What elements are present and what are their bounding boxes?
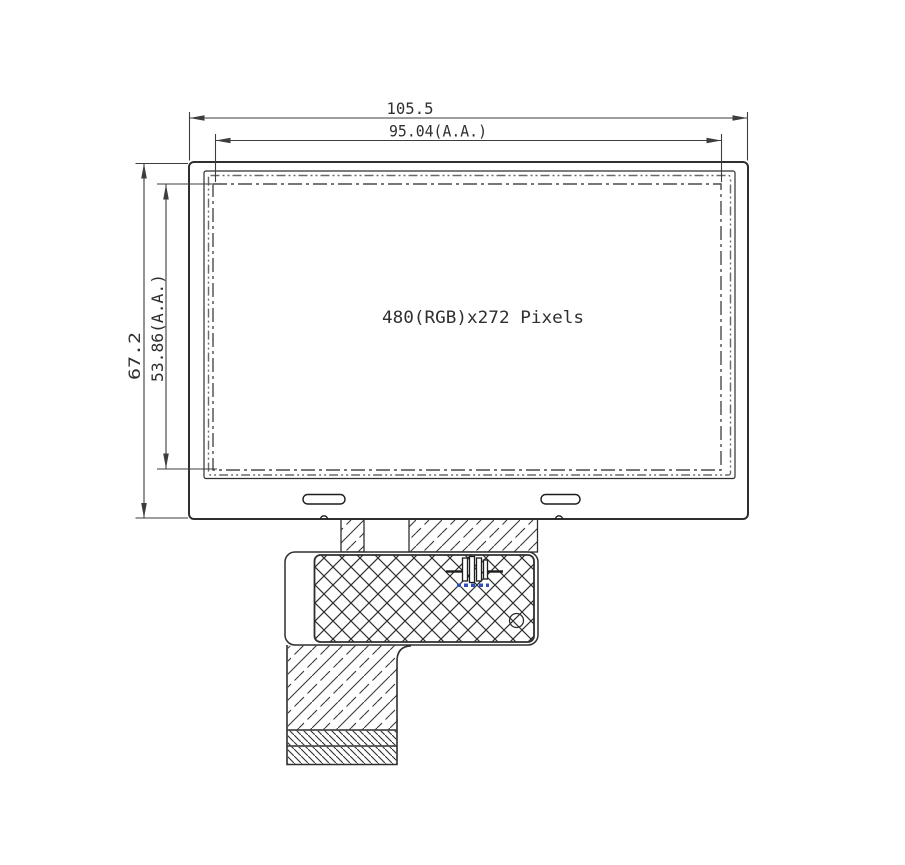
dim-outline-height-label: 67.2 [125,332,144,380]
fpc-strip-left [341,519,364,552]
dim-active-height-label: 53.86(A.A.) [148,274,167,382]
dim-active-width-label: 95.04(A.A.) [389,122,487,141]
resolution-label: 480(RGB)x272 Pixels [382,308,584,328]
mounting-slot-right [541,495,580,505]
fpc-contact-band-1 [288,731,396,745]
drawing-canvas: 480(RGB)x272 Pixels 105.5 95.04(A.A.) 67… [0,0,905,865]
fpc-crosshatch-area [315,555,535,642]
fpc-strip-right [409,519,538,552]
mounting-slot-left [303,495,345,505]
lcd-outline [189,162,748,519]
dim-outline-width-label: 105.5 [387,99,434,118]
fpc-contact-band-2 [288,747,396,764]
lcd-panel: 480(RGB)x272 Pixels [189,162,748,519]
fpc-tail-hatch [288,646,411,730]
